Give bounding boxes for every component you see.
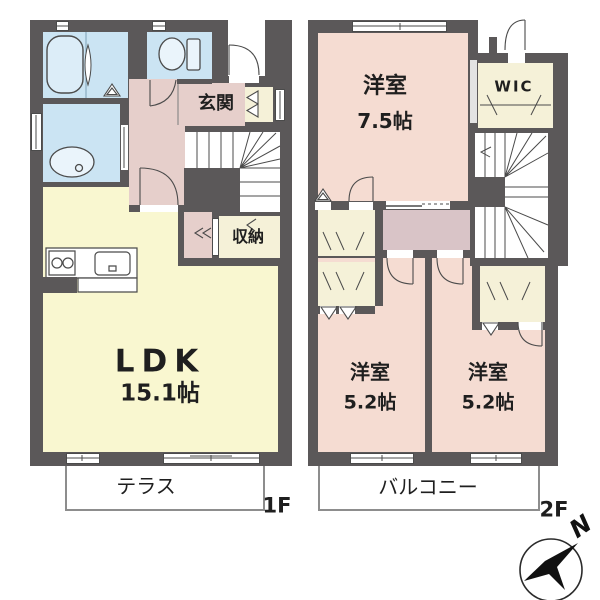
ldk-size-label: 15.1帖 — [120, 383, 200, 406]
floorplan-canvas: N LDK 15.1帖 玄関 収納 テラス 1F 洋室 7.5帖 WIC 洋室 … — [0, 0, 600, 600]
bedroom2-label: 洋室 — [350, 362, 390, 382]
bedroom2-size-label: 5.2帖 — [344, 394, 397, 413]
folding-door-icon-shoe — [247, 91, 258, 117]
balcony-label: バルコニー — [378, 477, 478, 497]
folding-door-icons-closet-b — [321, 307, 356, 319]
sliding-door-lines — [386, 204, 449, 206]
bathtub-icon — [47, 36, 83, 93]
stairs-2f-treads — [481, 133, 548, 258]
door-arc-main-room — [349, 177, 373, 201]
door-arc-bedroom2 — [387, 258, 413, 284]
floor1-label: 1F — [263, 496, 292, 517]
door-arc-hall-ldk — [140, 168, 178, 205]
floor2-label: 2F — [540, 500, 569, 521]
washbasin-icon — [50, 147, 94, 177]
bedroom3-size-label: 5.2帖 — [462, 394, 515, 413]
door-arc-bedroom3 — [437, 258, 463, 284]
door-arc-closet-r — [518, 322, 542, 346]
genkan-label: 玄関 — [198, 95, 234, 113]
ldk-label: LDK — [115, 347, 206, 378]
toilet-icon — [159, 38, 200, 70]
bedroom3-label: 洋室 — [468, 362, 508, 382]
terrace-label: テラス — [116, 476, 176, 496]
main-room-label: 洋室 — [363, 76, 407, 98]
folding-door-icon-bath — [104, 84, 120, 96]
compass-north-label: N — [564, 509, 597, 543]
wic-label: WIC — [494, 80, 533, 95]
stairs-1f-treads — [197, 132, 280, 196]
main-room-size-label: 7.5帖 — [357, 111, 412, 131]
sink-icon — [95, 252, 130, 275]
folding-door-icon-closet-r — [483, 323, 499, 335]
door-arc-front — [229, 45, 259, 75]
storage-label: 収納 — [232, 229, 264, 245]
door-arc-toilet — [150, 80, 176, 106]
folding-door-icon-closet-a — [315, 189, 331, 201]
kitchen-wall-stub — [43, 277, 77, 293]
door-arc-wic — [505, 20, 525, 50]
compass-icon: N — [520, 509, 597, 600]
